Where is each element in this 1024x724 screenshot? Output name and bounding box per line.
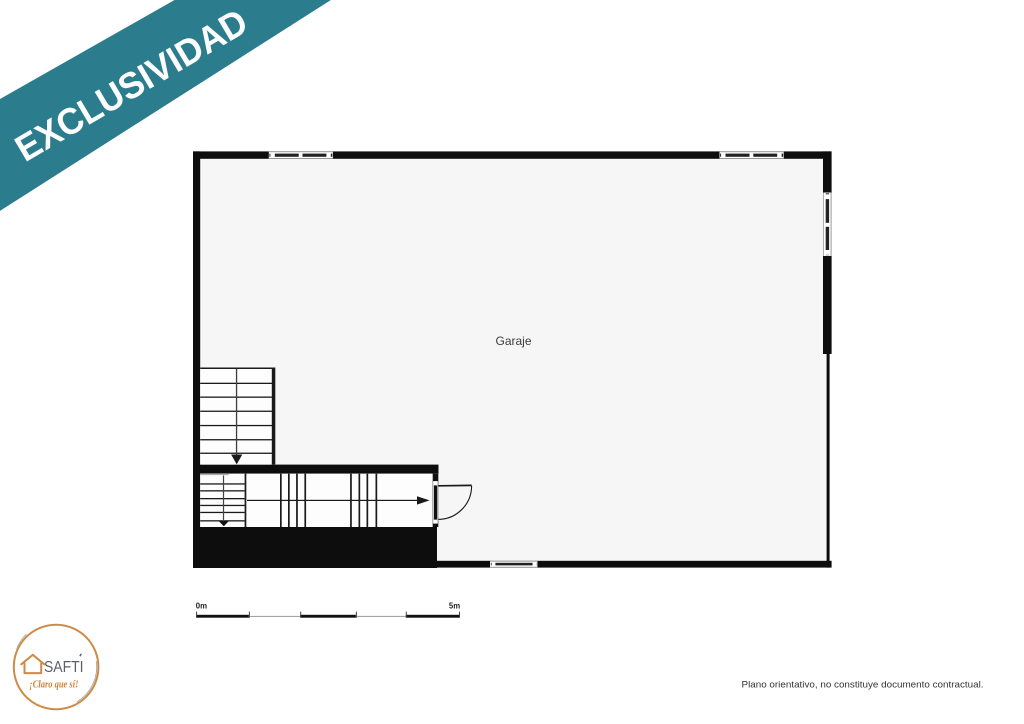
svg-text:0m: 0m [196,601,207,610]
svg-text:Garaje: Garaje [495,334,531,348]
svg-text:5m: 5m [449,601,460,610]
svg-text:SAFTI: SAFTI [44,659,84,676]
svg-text:Plano orientativo, no constitu: Plano orientativo, no constituye documen… [742,679,984,690]
svg-text:¡Claro que sí!: ¡Claro que sí! [29,679,78,690]
